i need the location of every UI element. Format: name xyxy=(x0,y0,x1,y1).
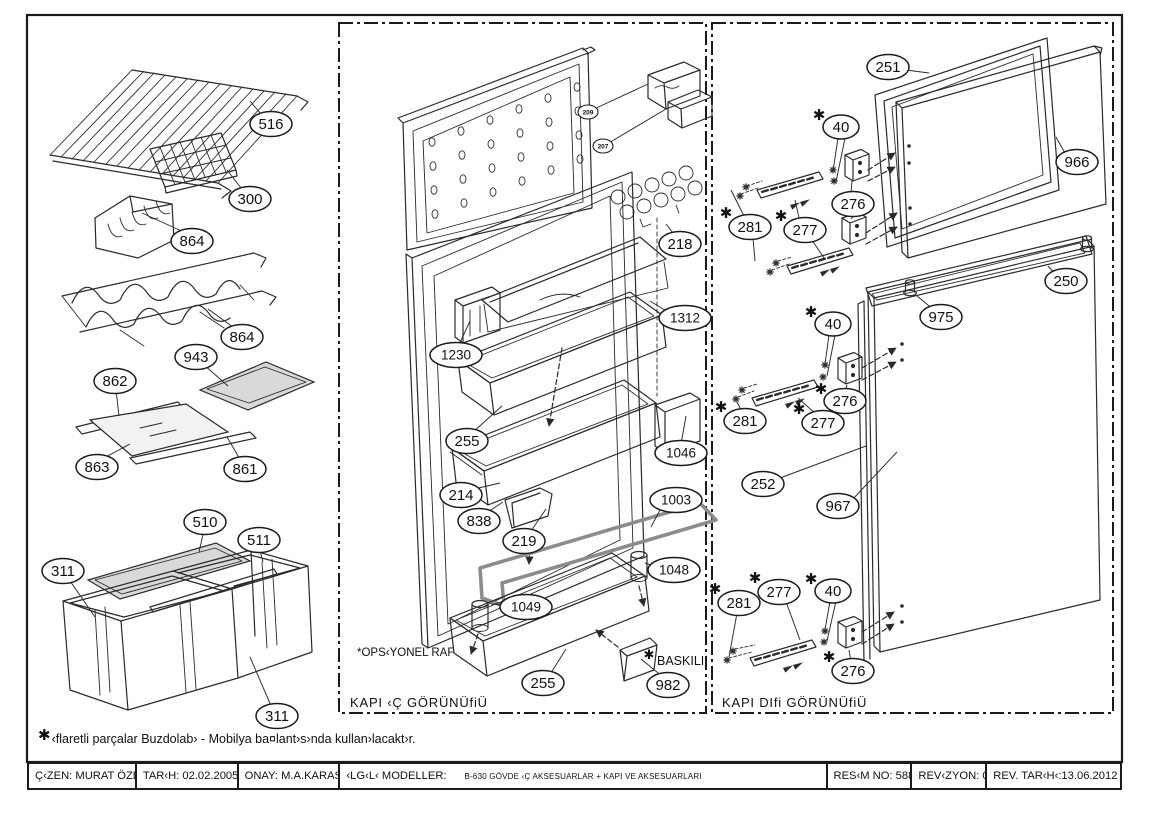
svg-text:281: 281 xyxy=(737,219,762,236)
callout-40-top: ✱ 40 xyxy=(813,107,859,182)
svg-text:✱: ✱ xyxy=(813,107,826,124)
svg-text:276: 276 xyxy=(840,196,865,213)
svg-text:✱: ✱ xyxy=(815,381,828,398)
printed-note-star: ✱ xyxy=(644,648,655,663)
svg-text:1312: 1312 xyxy=(670,311,700,326)
titleblock-revision: REV‹ZYON: 03 xyxy=(910,764,985,788)
screw xyxy=(743,184,749,190)
callout-255b: 255 xyxy=(522,649,566,696)
callout-255: 255 xyxy=(446,406,502,454)
callout-311b: 311 xyxy=(250,657,298,729)
bottle-keeper-wire xyxy=(480,503,716,606)
svg-text:214: 214 xyxy=(448,487,473,504)
callout-251: 251 xyxy=(867,55,929,80)
titleblock-revision-date: REV. TAR‹H‹:13.06.2012 xyxy=(985,764,1120,788)
hinge-cover-parts xyxy=(648,62,712,128)
bottle-rest xyxy=(95,196,174,258)
titleblock-drawing-no: RES‹M NO: 588 xyxy=(826,764,911,788)
diagram-canvas: 516 300 864 864 943 862 863 861 510 511 … xyxy=(0,0,1168,826)
titleblock-models-label: ‹LG‹L‹ MODELLER: xyxy=(346,770,446,782)
callout-281-mid: ✱ 281 xyxy=(715,399,766,434)
callout-1003: 1003 xyxy=(650,488,702,528)
svg-text:276: 276 xyxy=(832,393,857,410)
title-block: Ç‹ZEN: MURAT ÖZDEN TAR‹H: 02.02.2005 ONA… xyxy=(27,762,1122,790)
svg-text:863: 863 xyxy=(84,459,109,476)
svg-text:40: 40 xyxy=(825,583,842,600)
callout-250: 250 xyxy=(1045,266,1087,294)
svg-text:40: 40 xyxy=(825,316,842,333)
svg-text:255: 255 xyxy=(454,433,479,450)
screw xyxy=(820,374,826,380)
svg-text:✱: ✱ xyxy=(775,208,788,225)
assembly-arrow xyxy=(596,630,618,647)
door-shelf-bracket xyxy=(455,287,500,343)
svg-text:862: 862 xyxy=(102,373,127,390)
door-dimples xyxy=(429,83,583,218)
glass-cover-small xyxy=(200,362,314,410)
callout-311: 311 xyxy=(42,559,95,618)
svg-text:✱: ✱ xyxy=(805,304,818,321)
footnote: ✱‹flaretli parçalar Buzdolab› - Mobilya … xyxy=(38,729,416,747)
svg-text:943: 943 xyxy=(183,349,208,366)
assembly-arrow xyxy=(549,348,562,426)
callout-1312: 1312 xyxy=(650,301,711,331)
callout-863: 863 xyxy=(76,444,130,480)
callout-516: 516 xyxy=(250,101,292,137)
svg-text:277: 277 xyxy=(792,222,817,239)
callout-862: 862 xyxy=(94,369,136,417)
svg-text:311: 311 xyxy=(265,708,289,725)
inner-panel-caption: KAPI ‹Ç GÖRÜNÜfiÜ xyxy=(350,695,488,710)
svg-text:255: 255 xyxy=(530,675,555,692)
svg-text:511: 511 xyxy=(247,532,271,549)
upper-door-shelf xyxy=(458,292,666,415)
titleblock-approved-by: ONAY: M.A.KARASU xyxy=(237,764,339,788)
svg-text:516: 516 xyxy=(258,116,283,133)
svg-text:✱: ✱ xyxy=(715,399,728,416)
svg-text:✱: ✱ xyxy=(749,570,762,587)
sheet-border xyxy=(27,15,1122,762)
hinge-bracket xyxy=(838,617,862,649)
svg-text:967: 967 xyxy=(825,498,850,515)
freezer-inner-door xyxy=(398,47,595,250)
svg-text:40: 40 xyxy=(833,119,850,136)
screw xyxy=(821,639,827,645)
shelf-support xyxy=(505,488,552,528)
callout-967: 967 xyxy=(817,452,897,519)
svg-text:864: 864 xyxy=(179,233,204,250)
svg-text:1003: 1003 xyxy=(661,493,691,508)
callout-281-top: ✱ 281 xyxy=(720,190,771,261)
hinge-bracket xyxy=(845,150,869,182)
svg-text:251: 251 xyxy=(875,59,900,76)
svg-text:✱: ✱ xyxy=(805,571,818,588)
svg-text:✱: ✱ xyxy=(720,205,733,222)
svg-text:1049: 1049 xyxy=(511,600,541,615)
callout-252: 252 xyxy=(742,446,866,497)
callout-864b: 864 xyxy=(208,309,263,350)
titleblock-models-value: B-630 GÖVDE ‹Ç AKSESUARLAR + KAPI VE AKS… xyxy=(465,772,702,781)
optional-shelf-note: *OPS‹YONEL RAF xyxy=(357,647,454,659)
callout-966: 966 xyxy=(1056,137,1098,175)
svg-text:✱: ✱ xyxy=(709,581,722,598)
fridge-door xyxy=(868,240,1100,652)
svg-text:281: 281 xyxy=(732,413,757,430)
svg-text:281: 281 xyxy=(726,595,751,612)
svg-text:277: 277 xyxy=(810,415,835,432)
callout-1230: 1230 xyxy=(430,321,482,368)
svg-text:838: 838 xyxy=(466,513,491,530)
svg-text:510: 510 xyxy=(192,514,217,531)
titleblock-models: ‹LG‹L‹ MODELLER: B-630 GÖVDE ‹Ç AKSESUAR… xyxy=(338,764,825,788)
svg-text:861: 861 xyxy=(232,461,257,478)
callout-276-top: 276 xyxy=(832,181,874,219)
footnote-star: ✱ xyxy=(38,727,51,744)
svg-text:1230: 1230 xyxy=(441,348,471,363)
printed-note: BASKILI xyxy=(657,654,704,668)
callout-1048: 1048 xyxy=(645,558,700,583)
callout-218: 218 xyxy=(659,224,701,257)
svg-text:276: 276 xyxy=(840,663,865,680)
callout-276-mid: ✱ 276 xyxy=(815,381,866,414)
svg-text:982: 982 xyxy=(655,677,680,694)
slotted-rail xyxy=(752,380,818,406)
callout-943: 943 xyxy=(175,345,228,387)
slotted-rail xyxy=(750,640,816,666)
svg-text:311: 311 xyxy=(51,563,75,580)
callout-207: 207 xyxy=(593,109,666,153)
svg-text:✱: ✱ xyxy=(793,401,806,418)
slotted-rail xyxy=(757,172,823,198)
svg-text:✱: ✱ xyxy=(823,649,836,666)
svg-text:209: 209 xyxy=(583,110,594,117)
svg-text:207: 207 xyxy=(598,144,609,151)
outer-panel-caption: KAPI DIfi GÖRÜNÜfiÜ xyxy=(722,695,867,710)
assembly-arrow xyxy=(639,586,644,606)
svg-text:252: 252 xyxy=(750,476,775,493)
svg-text:300: 300 xyxy=(237,191,262,208)
svg-text:864: 864 xyxy=(229,329,254,346)
svg-text:966: 966 xyxy=(1064,154,1089,171)
outer-view-panel xyxy=(712,23,1113,713)
svg-text:1048: 1048 xyxy=(659,563,689,578)
drawing-sheet: 516 300 864 864 943 862 863 861 510 511 … xyxy=(0,0,1168,826)
titleblock-drawn-by: Ç‹ZEN: MURAT ÖZDEN xyxy=(29,764,135,788)
callout-276-bottom: ✱ 276 xyxy=(823,649,874,684)
callout-975: 975 xyxy=(917,296,962,330)
svg-text:277: 277 xyxy=(766,584,791,601)
callout-277-top: ✱ 277 xyxy=(775,200,826,258)
svg-text:975: 975 xyxy=(928,309,953,326)
svg-text:250: 250 xyxy=(1053,273,1078,290)
svg-text:218: 218 xyxy=(667,236,692,253)
mount-arrows xyxy=(862,153,897,644)
footnote-text: ‹flaretli parçalar Buzdolab› - Mobilya b… xyxy=(52,732,416,746)
svg-text:219: 219 xyxy=(511,533,536,550)
titleblock-date: TAR‹H: 02.02.2005 xyxy=(135,764,237,788)
svg-text:1046: 1046 xyxy=(666,446,696,461)
